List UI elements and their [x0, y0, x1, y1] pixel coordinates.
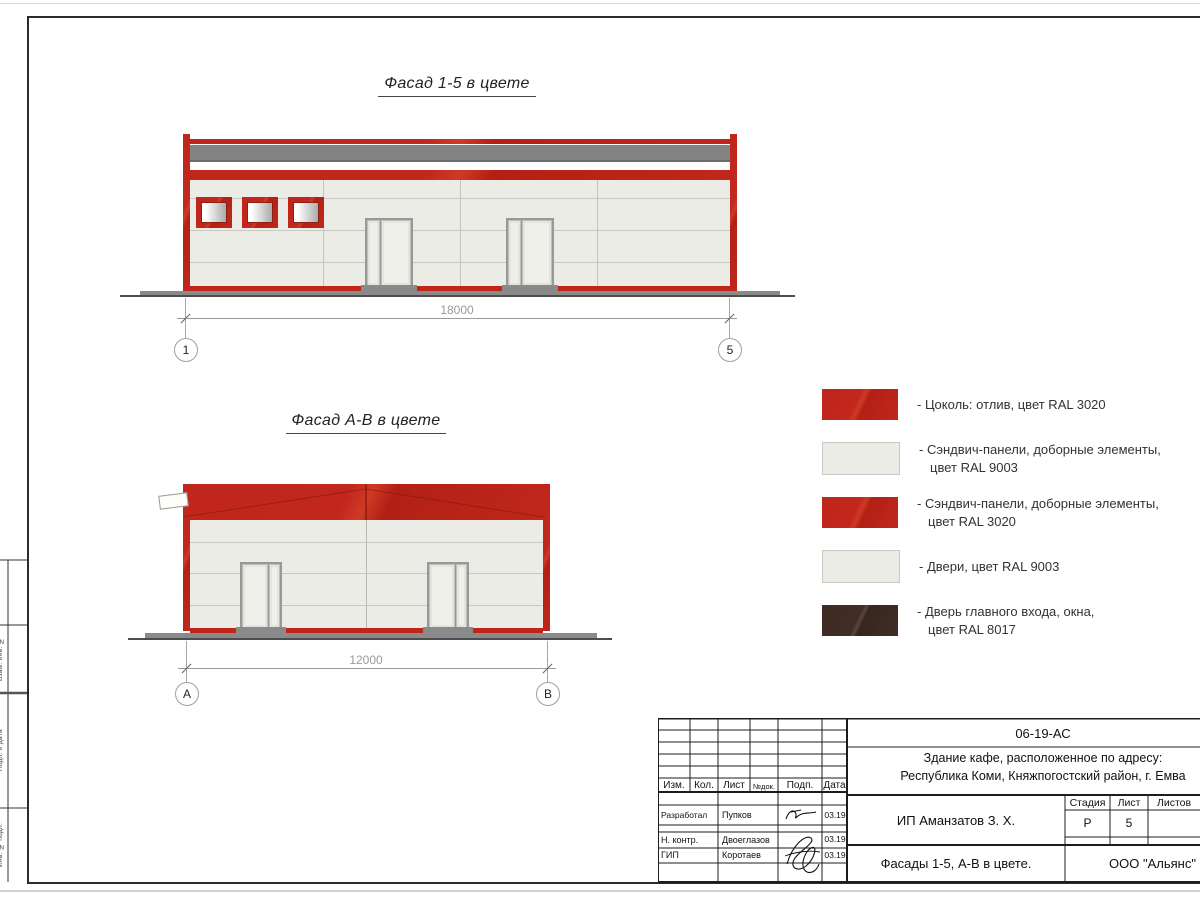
- door: [365, 218, 413, 288]
- door-leaf: [508, 220, 521, 286]
- door-leaf: [367, 220, 380, 286]
- signer-name: Коротаев: [722, 850, 761, 860]
- window: [196, 197, 232, 228]
- signer-role: ГИП: [661, 850, 679, 860]
- window-glass: [201, 202, 227, 223]
- drawing-sheet: Взам. инв. № Подп. и дата Инв. № подл. Ф…: [0, 0, 1200, 900]
- dimension-value: 12000: [316, 653, 416, 667]
- signature: [779, 828, 823, 878]
- facade-1-5-parapet-band: [190, 145, 730, 162]
- window-glass: [293, 202, 319, 223]
- signer-date: 03.19: [824, 834, 846, 844]
- paper-edge-top: [0, 3, 1200, 4]
- col-izm: Изм.: [659, 780, 689, 791]
- facade-1-5-red-band: [190, 170, 730, 180]
- panel-joint: [366, 520, 367, 628]
- extension-line: [186, 641, 187, 683]
- panel-joint: [323, 180, 324, 286]
- col-docno: №док.: [750, 782, 778, 791]
- col-list: Лист: [718, 780, 750, 791]
- window-glass: [247, 202, 273, 223]
- object-name-line1: Здание кафе, расположенное по адресу:: [848, 751, 1200, 765]
- facade-1-5-title: Фасад 1-5 в цвете: [337, 75, 577, 97]
- axis-bubble-a: А: [175, 682, 199, 706]
- facade-1-5-left-post: [183, 134, 190, 291]
- door: [240, 562, 282, 630]
- company-name: ООО "Альянс": [1065, 856, 1200, 871]
- legend-label: - Цоколь: отлив, цвет RAL 3020: [917, 396, 1106, 413]
- door-leaf: [381, 220, 411, 286]
- door: [427, 562, 469, 630]
- panel-joint: [460, 180, 461, 286]
- dimension-line: [177, 318, 737, 319]
- facade-a-b-title: Фасад А-В в цвете: [246, 412, 486, 434]
- signer-role: Н. контр.: [661, 835, 698, 845]
- dimension-line: [178, 668, 556, 669]
- paper-edge-bottom: [0, 890, 1200, 892]
- legend-item: - Сэндвич-панели, доборные элементы, цве…: [822, 497, 1159, 528]
- ground-line: [120, 295, 795, 297]
- legend-label: - Сэндвич-панели, доборные элементы, цве…: [917, 495, 1159, 529]
- doc-number: 06-19-АС: [848, 726, 1200, 741]
- col-kol: Кол.: [690, 780, 718, 791]
- roof-slope-lines: [183, 484, 550, 520]
- sheet-col-header: Лист: [1110, 797, 1148, 809]
- legend-swatch: [822, 442, 900, 475]
- facade-1-5-right-post: [730, 134, 737, 291]
- client-name: ИП Аманзатов З. Х.: [847, 813, 1065, 828]
- door-leaf: [522, 220, 552, 286]
- sheet-value: 5: [1110, 816, 1148, 830]
- axis-bubble-b: В: [536, 682, 560, 706]
- object-name-line2: Республика Коми, Княжпогостский район, г…: [848, 769, 1200, 783]
- extension-line: [547, 641, 548, 683]
- signature: [782, 806, 820, 824]
- axis-bubble-5: 5: [718, 338, 742, 362]
- signer-date: 03.19: [824, 850, 846, 860]
- door-leaf: [269, 564, 280, 628]
- signer-date: 03.19: [824, 810, 846, 820]
- stage-col-header: Стадия: [1065, 797, 1110, 809]
- legend-label: - Сэндвич-панели, доборные элементы, цве…: [919, 441, 1161, 475]
- legend-item: - Сэндвич-панели, доборные элементы, цве…: [822, 443, 1161, 474]
- legend-label: - Дверь главного входа, окна, цвет RAL 8…: [917, 603, 1094, 637]
- sheet-name: Фасады 1-5, А-В в цвете.: [847, 856, 1065, 871]
- window: [288, 197, 324, 228]
- sheets-col-header: Листов: [1148, 797, 1200, 809]
- door-leaf: [242, 564, 268, 628]
- facade-1-5-roof-cap: [183, 139, 737, 144]
- window: [242, 197, 278, 228]
- door: [506, 218, 554, 288]
- door-leaf: [456, 564, 467, 628]
- stage-value: Р: [1065, 816, 1110, 830]
- axis-bubble-1: 1: [174, 338, 198, 362]
- side-column-label: Взам. инв. №: [0, 625, 11, 693]
- door-leaf: [429, 564, 455, 628]
- legend-swatch: [822, 550, 900, 583]
- col-date: Дата: [822, 780, 847, 791]
- panel-joint: [597, 180, 598, 286]
- legend-swatch: [822, 605, 898, 636]
- legend-item: - Двери, цвет RAL 9003: [822, 551, 1059, 582]
- dimension-value: 18000: [407, 303, 507, 317]
- signer-role: Разработал: [661, 810, 707, 820]
- side-column-label: Подп. и дата: [0, 693, 11, 808]
- legend-swatch: [822, 497, 898, 528]
- ground-line: [128, 638, 612, 640]
- legend-swatch: [822, 389, 898, 420]
- side-column-label: Инв. № подл.: [0, 808, 11, 882]
- legend-item: - Цоколь: отлив, цвет RAL 3020: [822, 389, 1106, 420]
- legend-label: - Двери, цвет RAL 9003: [919, 558, 1059, 575]
- signer-name: Двоеглазов: [722, 835, 770, 845]
- legend-item: - Дверь главного входа, окна, цвет RAL 8…: [822, 605, 1094, 636]
- col-sign: Подп.: [778, 780, 822, 791]
- signer-name: Пупков: [722, 810, 752, 820]
